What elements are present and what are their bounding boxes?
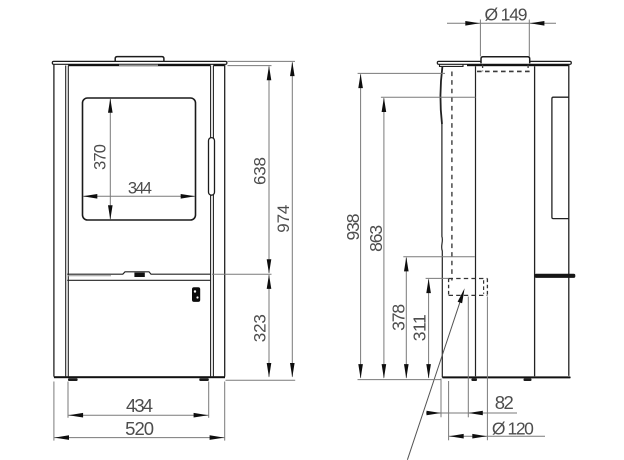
svg-text:378: 378: [388, 304, 408, 331]
svg-text:323: 323: [251, 314, 270, 342]
svg-text:Ø 120: Ø 120: [492, 419, 534, 439]
svg-text:370: 370: [92, 144, 110, 170]
svg-text:82: 82: [495, 392, 514, 413]
svg-text:311: 311: [410, 314, 430, 341]
svg-text:344: 344: [128, 179, 152, 197]
svg-text:638: 638: [251, 157, 270, 185]
svg-text:Ø 149: Ø 149: [485, 4, 528, 24]
svg-text:974: 974: [274, 205, 293, 233]
svg-text:863: 863: [366, 225, 386, 252]
svg-text:434: 434: [126, 395, 153, 416]
svg-text:938: 938: [343, 214, 363, 241]
svg-text:520: 520: [125, 418, 154, 439]
